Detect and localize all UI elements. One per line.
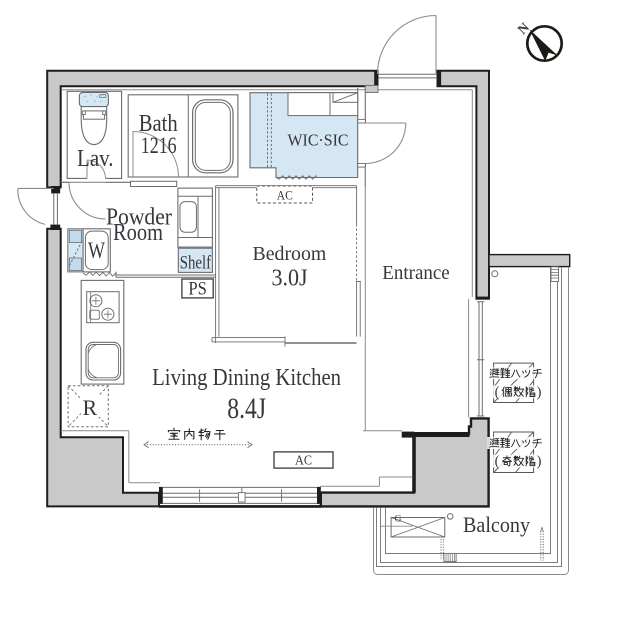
svg-text:Entrance: Entrance: [382, 262, 449, 284]
svg-text:Living Dining Kitchen: Living Dining Kitchen: [152, 364, 341, 391]
svg-text:R: R: [83, 395, 98, 420]
svg-text:Shelf: Shelf: [180, 253, 212, 274]
svg-text:Balcony: Balcony: [463, 512, 530, 537]
svg-text:Bedroom: Bedroom: [253, 243, 327, 265]
svg-text:3.0J: 3.0J: [271, 265, 307, 291]
svg-text:WIC·SIC: WIC·SIC: [288, 130, 349, 149]
svg-text:W: W: [88, 238, 105, 263]
svg-text:(: (: [495, 454, 500, 470]
svg-text:): ): [537, 384, 542, 400]
svg-text:AC: AC: [295, 454, 312, 469]
svg-text:): ): [537, 454, 542, 470]
svg-text:AC: AC: [277, 188, 293, 203]
svg-text:1216: 1216: [141, 133, 177, 159]
svg-text:8.4J: 8.4J: [227, 392, 266, 425]
svg-text:(: (: [495, 384, 500, 400]
svg-text:Lav.: Lav.: [77, 146, 114, 172]
svg-text:Room: Room: [113, 220, 163, 246]
svg-text:PS: PS: [188, 279, 207, 300]
svg-text:G: G: [395, 515, 402, 525]
